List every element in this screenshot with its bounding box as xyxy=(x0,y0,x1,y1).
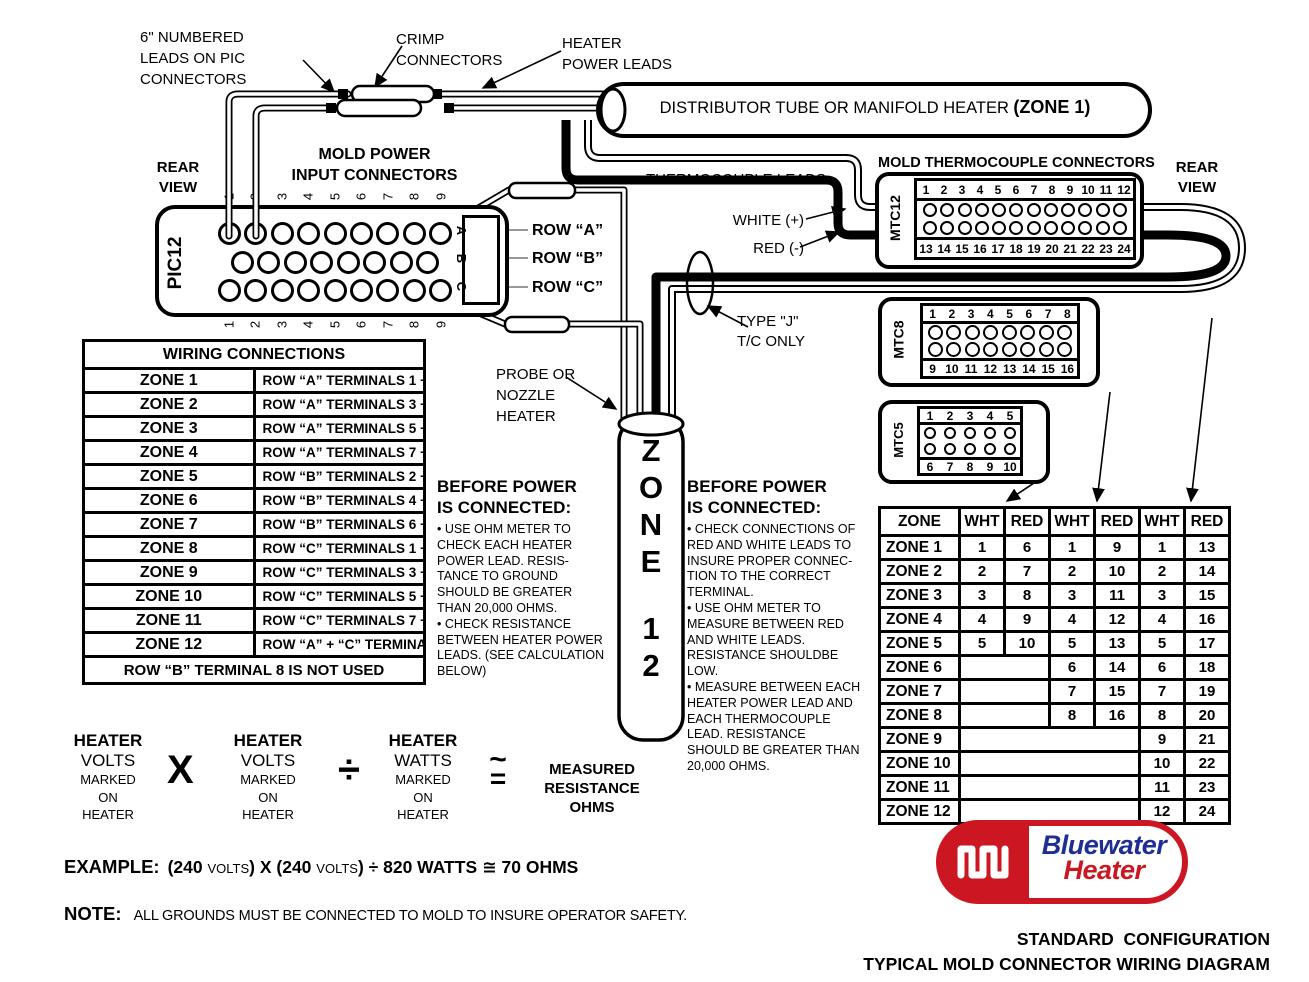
zone-cell: ZONE 10 xyxy=(880,752,960,776)
pin-number: 13 xyxy=(1000,362,1019,376)
formula-term-volts-1: HEATER VOLTS MARKED ON HEATER xyxy=(60,731,156,824)
pin-hole xyxy=(1113,221,1127,235)
mtc12-top-numbers: 123456789101112 xyxy=(917,181,1133,201)
term-title: HEATER xyxy=(60,731,156,751)
table-row: ZONE 4ROW “A” TERMINALS 7 + 8 xyxy=(84,441,425,465)
mtc8-top-numbers: 12345678 xyxy=(923,306,1077,324)
pin-hole xyxy=(983,342,998,357)
pin-hole xyxy=(350,279,373,302)
pic12-connector: PIC12 123456789 A B C 123456789 xyxy=(155,205,509,317)
label-distributor-tube: DISTRIBUTOR TUBE OR MANIFOLD HEATER (ZON… xyxy=(615,97,1135,118)
pin-hole xyxy=(376,222,399,245)
mtc5-bottom-numbers: 678910 xyxy=(920,457,1020,473)
pin-hole xyxy=(924,443,936,455)
table-cell: ZONE 8 xyxy=(84,537,255,561)
before-power-right: BEFORE POWER IS CONNECTED: • CHECK CONNE… xyxy=(687,476,879,775)
pin-hole xyxy=(1002,342,1017,357)
bluewater-heater-logo: Bluewater Heater xyxy=(936,820,1188,904)
title-standard-configuration: STANDARD CONFIGURATION xyxy=(760,927,1270,952)
before-power-right-item: • USE OHM METER TO MEASURE BETWEEN RED A… xyxy=(687,601,879,680)
pin-hole xyxy=(1020,342,1035,357)
logo-word-heater: Heater xyxy=(1030,856,1178,884)
pin-hole xyxy=(271,279,294,302)
table-cell: ROW “B” TERMINALS 4 + 5 xyxy=(254,489,425,513)
pin-hole xyxy=(390,251,413,274)
example-segment: VOLTS xyxy=(316,861,358,876)
leader-white-plus xyxy=(806,209,845,219)
leader-mtc12-table xyxy=(1191,318,1212,501)
lead-terminal xyxy=(338,89,348,99)
table-cell: 12 xyxy=(1095,608,1140,632)
table-cell: 14 xyxy=(1185,560,1230,584)
table-cell: 8 xyxy=(1140,704,1185,728)
pin-hole xyxy=(958,221,972,235)
pic12-row-b xyxy=(216,248,454,277)
pin-hole xyxy=(218,222,241,245)
pin-hole xyxy=(983,325,998,340)
table-cell: 9 xyxy=(1005,608,1050,632)
mtc8-connector: MTC8 12345678 910111213141516 xyxy=(878,297,1100,387)
pin-hole xyxy=(984,443,996,455)
pin-hole xyxy=(1044,203,1058,217)
note-line: NOTE: ALL GROUNDS MUST BE CONNECTED TO M… xyxy=(64,903,687,925)
pin-number: 9 xyxy=(433,311,448,337)
lead-terminal xyxy=(432,89,442,99)
zone12-heater-label: ZONE12 xyxy=(622,432,680,737)
table-cell: ZONE 5 xyxy=(84,465,255,489)
table-row: ZONE 1ROW “A” TERMINALS 1 + 2 xyxy=(84,369,425,393)
table-cell: 11 xyxy=(1095,584,1140,608)
table-cell xyxy=(960,656,1050,680)
crimp-connector xyxy=(352,86,434,102)
pin-hole xyxy=(940,221,954,235)
table-row: ZONE 449412416 xyxy=(880,608,1230,632)
label-mold-tc-connectors: MOLD THERMOCOUPLE CONNECTORS xyxy=(878,153,1155,173)
pic12-top-numbers: 123456789 xyxy=(216,187,454,205)
example-line: EXAMPLE: (240 VOLTS) X (240 VOLTS) ÷ 820… xyxy=(64,856,578,878)
pin-hole xyxy=(1096,221,1110,235)
pin-number: 2 xyxy=(940,409,960,423)
mtc5-frame: 12345 678910 xyxy=(917,406,1023,476)
pin-number: 15 xyxy=(953,242,971,256)
label-type-j: TYPE "J" T/C ONLY xyxy=(737,312,805,352)
label-white-plus: WHITE (+) xyxy=(716,211,804,231)
zone-wht-red-table: ZONEWHTREDWHTREDWHTREDZONE 11619113ZONE … xyxy=(878,506,1231,825)
table-cell: ZONE 3 xyxy=(84,417,255,441)
table-row: ZONE 3ROW “A” TERMINALS 5 + 6 xyxy=(84,417,425,441)
mtc5-hole-row xyxy=(920,425,1020,441)
lead-terminal xyxy=(326,103,336,113)
pin-hole xyxy=(1039,342,1054,357)
table-cell: 1 xyxy=(1050,536,1095,560)
column-header: WHT xyxy=(1050,508,1095,536)
table-cell: 5 xyxy=(1140,632,1185,656)
pin-number: 6 xyxy=(354,311,369,337)
pin-hole xyxy=(1004,443,1016,455)
pin-number: 7 xyxy=(1039,307,1058,321)
pin-number: 7 xyxy=(1025,183,1043,197)
term-title: HEATER xyxy=(220,731,316,751)
table-cell: 19 xyxy=(1185,680,1230,704)
pin-hole xyxy=(284,251,307,274)
pin-hole xyxy=(944,427,956,439)
pin-hole xyxy=(1039,325,1054,340)
divide-operator: ÷ xyxy=(338,748,360,793)
term-unit: VOLTS xyxy=(220,751,316,771)
pic12-bottom-numbers: 123456789 xyxy=(216,315,454,333)
mtc12-frame: 123456789101112 131415161718192021222324 xyxy=(914,178,1136,260)
column-header: ZONE xyxy=(880,508,960,536)
pin-number: 20 xyxy=(1043,242,1061,256)
label-mold-power: MOLD POWER INPUT CONNECTORS xyxy=(252,144,497,186)
pin-hole xyxy=(964,427,976,439)
pin-hole xyxy=(1078,203,1092,217)
table-cell: ROW “C” TERMINALS 3 + 4 xyxy=(254,561,425,585)
pin-number: 6 xyxy=(920,460,940,474)
table-cell xyxy=(960,752,1140,776)
pin-hole xyxy=(1009,221,1023,235)
table-cell: ZONE 12 xyxy=(84,633,255,657)
table-cell: ROW “A” TERMINALS 3 + 4 xyxy=(254,393,425,417)
lead-terminal xyxy=(444,103,454,113)
pin-hole xyxy=(324,279,347,302)
pin-hole xyxy=(923,221,937,235)
table-row: ZONE 8ROW “C” TERMINALS 1 + 2 xyxy=(84,537,425,561)
type-j-oval xyxy=(687,252,713,314)
stacked-char: E xyxy=(641,543,662,580)
before-power-left: BEFORE POWER IS CONNECTED: • USE OHM MET… xyxy=(437,476,629,680)
zone-cell: ZONE 11 xyxy=(880,776,960,800)
pin-hole xyxy=(376,279,399,302)
zone-cell: ZONE 9 xyxy=(880,728,960,752)
pin-number: 4 xyxy=(971,183,989,197)
table-cell: ROW “C” TERMINALS 1 + 2 xyxy=(254,537,425,561)
example-segment: (240 xyxy=(168,857,208,877)
pin-hole xyxy=(940,203,954,217)
table-row: ZONE 111123 xyxy=(880,776,1230,800)
pin-number: 11 xyxy=(1097,183,1115,197)
mtc12-bottom-numbers: 131415161718192021222324 xyxy=(917,237,1133,257)
zone-cell: ZONE 6 xyxy=(880,656,960,680)
table-cell: 13 xyxy=(1095,632,1140,656)
table-row: ZONE 8816820 xyxy=(880,704,1230,728)
pin-hole xyxy=(271,222,294,245)
table-cell xyxy=(960,776,1140,800)
pin-hole xyxy=(310,251,333,274)
zone-cell: ZONE 5 xyxy=(880,632,960,656)
table-cell: 10 xyxy=(1140,752,1185,776)
pin-hole xyxy=(946,325,961,340)
mtc8-bottom-numbers: 910111213141516 xyxy=(923,358,1077,376)
before-power-left-title: BEFORE POWER IS CONNECTED: xyxy=(437,476,629,518)
table-row: ROW “B” TERMINAL 8 IS NOT USED xyxy=(84,657,425,684)
table-cell: ROW “C” TERMINALS 5 + 6 xyxy=(254,585,425,609)
table-cell xyxy=(960,728,1140,752)
formula-term-watts: HEATER WATTS MARKED ON HEATER xyxy=(375,731,471,824)
pin-number: 8 xyxy=(1058,307,1077,321)
mtc8-hole-row xyxy=(923,324,1077,341)
multiply-operator: X xyxy=(167,748,194,793)
pin-hole xyxy=(429,279,452,302)
table-row: ZONE 7715719 xyxy=(880,680,1230,704)
table-cell xyxy=(960,704,1050,728)
pin-number: 9 xyxy=(923,362,942,376)
crimp-connector xyxy=(509,183,575,198)
table-cell: 4 xyxy=(1140,608,1185,632)
pin-number: 10 xyxy=(942,362,961,376)
before-power-right-item: • MEASURE BETWEEN EACH HEATER POWER LEAD… xyxy=(687,680,879,775)
pin-hole xyxy=(923,203,937,217)
table-cell: 6 xyxy=(1050,656,1095,680)
pin-number: 22 xyxy=(1079,242,1097,256)
pin-number: 8 xyxy=(407,311,422,337)
table-cell: ROW “A” TERMINALS 5 + 6 xyxy=(254,417,425,441)
before-power-right-title: BEFORE POWER IS CONNECTED: xyxy=(687,476,879,518)
pin-hole xyxy=(324,222,347,245)
logo-text: Bluewater Heater xyxy=(1030,830,1178,884)
pin-hole xyxy=(984,427,996,439)
pin-hole xyxy=(965,342,980,357)
column-header: WHT xyxy=(1140,508,1185,536)
table-row: ZONE 7ROW “B” TERMINALS 6 + 7 xyxy=(84,513,425,537)
pin-number: 7 xyxy=(380,183,395,209)
pin-number: 19 xyxy=(1025,242,1043,256)
pin-number: 5 xyxy=(1000,307,1019,321)
table-row: ZONE 2ROW “A” TERMINALS 3 + 4 xyxy=(84,393,425,417)
pin-number: 14 xyxy=(1019,362,1038,376)
table-cell: 10 xyxy=(1095,560,1140,584)
mtc12-connector: MTC12 123456789101112 131415161718192021… xyxy=(875,172,1144,269)
table-cell: WIRING CONNECTIONS xyxy=(84,341,425,369)
table-row: ZONE 101022 xyxy=(880,752,1230,776)
pic12-row-c xyxy=(216,276,454,305)
table-row: ZONE 6ROW “B” TERMINALS 4 + 5 xyxy=(84,489,425,513)
table-cell: ROW “B” TERMINAL 8 IS NOT USED xyxy=(84,657,425,684)
table-cell: 9 xyxy=(1095,536,1140,560)
pin-hole xyxy=(992,203,1006,217)
pin-hole xyxy=(975,203,989,217)
pin-number: 10 xyxy=(1079,183,1097,197)
table-cell: ROW “C” TERMINALS 7 + 8 xyxy=(254,609,425,633)
table-cell: 1 xyxy=(960,536,1005,560)
pin-hole xyxy=(1113,203,1127,217)
pin-hole xyxy=(1078,221,1092,235)
mtc5-label: MTC5 xyxy=(891,402,905,478)
pic12-label: PIC12 xyxy=(165,223,185,303)
table-cell: 7 xyxy=(1005,560,1050,584)
pin-number: 3 xyxy=(275,311,290,337)
label-row-a: ROW “A” xyxy=(532,221,603,241)
mtc5-hole-row xyxy=(920,441,1020,457)
pin-hole xyxy=(403,279,426,302)
table-row: ZONE 9ROW “C” TERMINALS 3 + 4 xyxy=(84,561,425,585)
pic12-keyway xyxy=(462,215,500,305)
label-heater-power-leads: HEATER POWER LEADS xyxy=(562,33,672,75)
table-row: ZONE 12ROW “A” + “C” TERMINALS 9 xyxy=(84,633,425,657)
pin-number: 17 xyxy=(989,242,1007,256)
pin-number: 11 xyxy=(962,362,981,376)
table-cell: 22 xyxy=(1185,752,1230,776)
pin-hole xyxy=(1009,203,1023,217)
table-cell: ZONE 7 xyxy=(84,513,255,537)
table-cell: 11 xyxy=(1140,776,1185,800)
table-cell: ROW “A” TERMINALS 7 + 8 xyxy=(254,441,425,465)
pin-number: 6 xyxy=(1007,183,1025,197)
table-cell: 21 xyxy=(1185,728,1230,752)
before-power-left-item: • USE OHM METER TO CHECK EACH HEATER POW… xyxy=(437,522,629,617)
pin-number: 4 xyxy=(301,311,316,337)
pin-hole xyxy=(928,325,943,340)
label-crimp-connectors: CRIMP CONNECTORS xyxy=(396,29,502,71)
pin-number: 3 xyxy=(962,307,981,321)
pin-number: 8 xyxy=(1043,183,1061,197)
pin-hole xyxy=(965,325,980,340)
table-cell: ZONE 10 xyxy=(84,585,255,609)
before-power-left-item: • CHECK RESISTANCE BETWEEN HEATER POWER … xyxy=(437,617,629,680)
column-header: RED xyxy=(1005,508,1050,536)
table-cell: ZONE 6 xyxy=(84,489,255,513)
table-cell: 13 xyxy=(1185,536,1230,560)
pin-hole xyxy=(928,342,943,357)
mtc8-label: MTC8 xyxy=(891,302,906,378)
pin-hole xyxy=(1004,427,1016,439)
pin-number: 21 xyxy=(1061,242,1079,256)
pin-number: 1 xyxy=(222,183,237,209)
table-cell: 4 xyxy=(1050,608,1095,632)
crimp-connector xyxy=(337,100,421,116)
term-unit: WATTS xyxy=(375,751,471,771)
pin-hole xyxy=(403,222,426,245)
leader-numbered-leads xyxy=(303,60,334,92)
stacked-char: N xyxy=(640,506,662,543)
leader-mtc8-table xyxy=(1097,392,1110,501)
table-row: ZONE 6614618 xyxy=(880,656,1230,680)
pin-hole xyxy=(924,427,936,439)
tc-lead-white-zone1 xyxy=(588,120,880,207)
table-cell: 3 xyxy=(960,584,1005,608)
pin-number: 1 xyxy=(920,409,940,423)
wiring-connections-table: WIRING CONNECTIONSZONE 1ROW “A” TERMINAL… xyxy=(82,339,426,685)
table-cell: 14 xyxy=(1095,656,1140,680)
mtc5-top-numbers: 12345 xyxy=(920,409,1020,425)
formula-term-volts-2: HEATER VOLTS MARKED ON HEATER xyxy=(220,731,316,824)
example-segment: ) ÷ 820 WATTS ≅ 70 OHMS xyxy=(358,857,578,877)
term-sub: MARKED ON HEATER xyxy=(60,771,156,824)
table-cell: ROW “A” TERMINALS 1 + 2 xyxy=(254,369,425,393)
mtc5-connector: MTC5 12345 678910 xyxy=(878,400,1050,484)
pin-number: 23 xyxy=(1097,242,1115,256)
pin-hole xyxy=(1027,203,1041,217)
pin-hole xyxy=(1027,221,1041,235)
pin-hole xyxy=(218,279,241,302)
pin-hole xyxy=(244,222,267,245)
pin-hole xyxy=(1096,203,1110,217)
term-unit: VOLTS xyxy=(60,751,156,771)
pin-number: 3 xyxy=(953,183,971,197)
pin-number: 13 xyxy=(917,242,935,256)
table-cell: 2 xyxy=(960,560,1005,584)
pin-number: 16 xyxy=(1058,362,1077,376)
pin-number: 12 xyxy=(1115,183,1133,197)
distributor-text: DISTRIBUTOR TUBE OR MANIFOLD HEATER xyxy=(660,99,1009,117)
pin-number: 16 xyxy=(971,242,989,256)
pin-number: 3 xyxy=(960,409,980,423)
table-cell: 2 xyxy=(1050,560,1095,584)
pin-number: 5 xyxy=(327,311,342,337)
approx-equal-symbol: ~ = xyxy=(478,752,518,791)
pin-number: 15 xyxy=(1039,362,1058,376)
formula-result: MEASURED RESISTANCE OHMS xyxy=(522,760,662,817)
table-row: ZONE 10ROW “C” TERMINALS 5 + 6 xyxy=(84,585,425,609)
title-typical-mold: TYPICAL MOLD CONNECTOR WIRING DIAGRAM xyxy=(760,952,1270,977)
column-header: RED xyxy=(1185,508,1230,536)
table-row: ZONE 11ROW “C” TERMINALS 7 + 8 xyxy=(84,609,425,633)
wiring-diagram-page: PIC12 123456789 A B C 123456789 MTC12 12… xyxy=(0,0,1309,982)
column-header: RED xyxy=(1095,508,1140,536)
mtc12-hole-row xyxy=(917,201,1133,219)
pin-number: 4 xyxy=(301,183,316,209)
table-row: ZONE 227210214 xyxy=(880,560,1230,584)
table-cell: 16 xyxy=(1095,704,1140,728)
example-segment: ) X (240 xyxy=(249,857,316,877)
table-cell: 2 xyxy=(1140,560,1185,584)
pin-hole xyxy=(244,279,267,302)
pin-hole xyxy=(297,222,320,245)
stacked-char: Z xyxy=(642,432,661,469)
pin-number: 2 xyxy=(935,183,953,197)
pin-number: 5 xyxy=(989,183,1007,197)
pin-number: 9 xyxy=(433,183,448,209)
table-cell: 7 xyxy=(1140,680,1185,704)
pin-hole xyxy=(231,251,254,274)
pin-hole xyxy=(350,222,373,245)
pin-hole xyxy=(1061,203,1075,217)
table-cell: 4 xyxy=(960,608,1005,632)
term-title: HEATER xyxy=(375,731,471,751)
pin-number: 1 xyxy=(923,307,942,321)
pin-hole xyxy=(297,279,320,302)
example-text: (240 VOLTS) X (240 VOLTS) ÷ 820 WATTS ≅ … xyxy=(168,857,579,878)
label-numbered-leads: 6" NUMBERED LEADS ON PIC CONNECTORS xyxy=(140,27,246,90)
table-cell: 3 xyxy=(1140,584,1185,608)
pin-hole xyxy=(429,222,452,245)
label-red-minus: RED (-) xyxy=(716,239,804,259)
pin-hole xyxy=(257,251,280,274)
pin-hole xyxy=(992,221,1006,235)
table-cell: ROW “B” TERMINALS 2 + 3 xyxy=(254,465,425,489)
table-cell: 8 xyxy=(1005,584,1050,608)
pin-hole xyxy=(1061,221,1075,235)
table-cell: ROW “A” + “C” TERMINALS 9 xyxy=(254,633,425,657)
zone-cell: ZONE 7 xyxy=(880,680,960,704)
table-cell: 6 xyxy=(1140,656,1185,680)
distributor-zone: (ZONE 1) xyxy=(1013,97,1090,117)
table-cell: ZONE 1 xyxy=(84,369,255,393)
mtc12-label: MTC12 xyxy=(887,178,903,258)
heating-element-icon xyxy=(941,825,1029,899)
pin-number: 7 xyxy=(940,460,960,474)
pin-hole xyxy=(958,203,972,217)
table-cell: 16 xyxy=(1185,608,1230,632)
table-cell: ZONE 4 xyxy=(84,441,255,465)
table-cell: ZONE 2 xyxy=(84,393,255,417)
pic12-holes xyxy=(216,219,454,305)
stacked-char: 2 xyxy=(642,647,659,684)
pin-hole xyxy=(337,251,360,274)
zone-cell: ZONE 12 xyxy=(880,800,960,824)
pin-hole xyxy=(1044,221,1058,235)
mtc8-frame: 12345678 910111213141516 xyxy=(920,303,1080,379)
